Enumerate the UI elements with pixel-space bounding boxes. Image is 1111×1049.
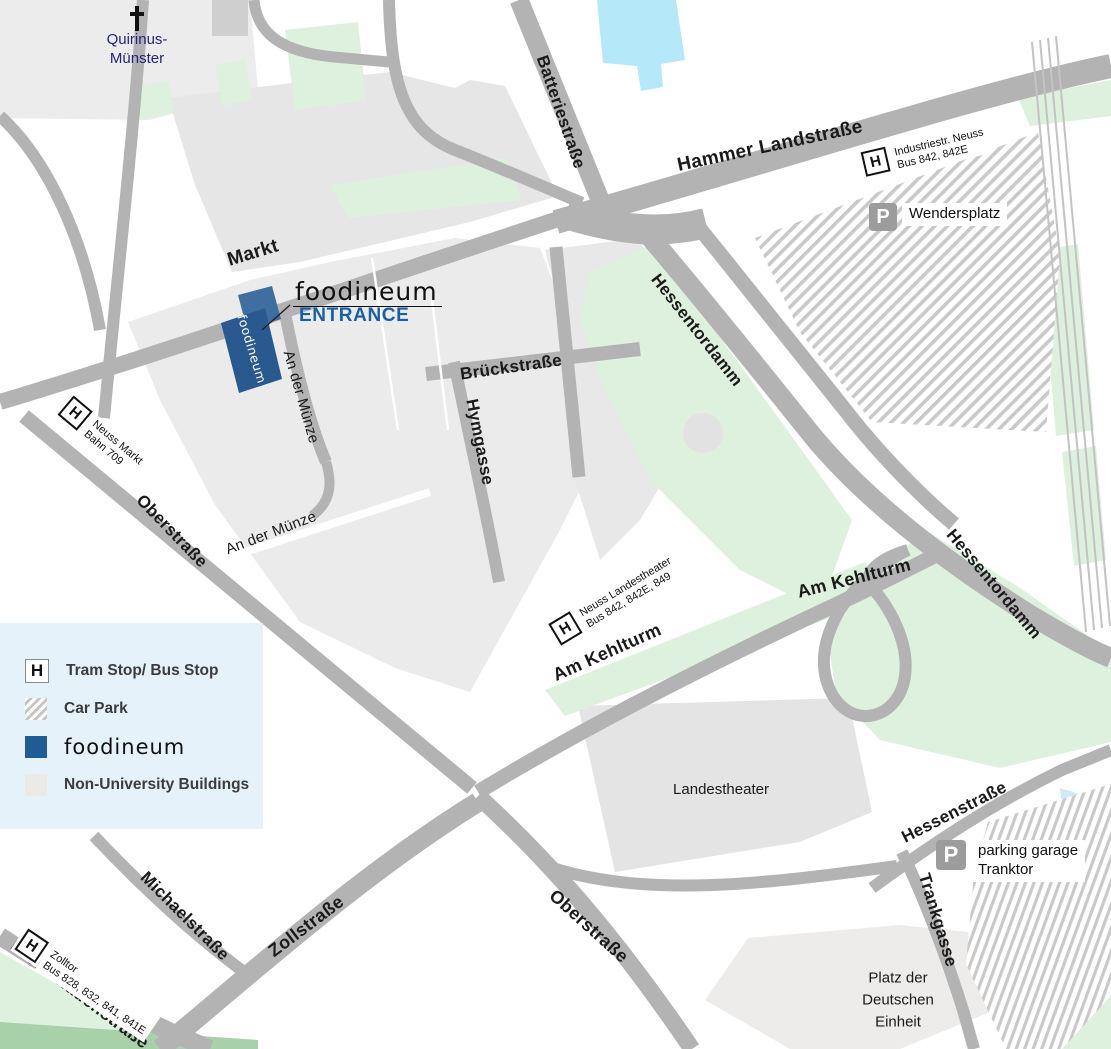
foodineum-title: foodineum bbox=[293, 279, 442, 307]
parking-garage-label: parking garageTranktor bbox=[971, 840, 1085, 882]
legend: H Tram Stop/ Bus Stop Car Park foodineum… bbox=[0, 623, 263, 829]
parking-icon: P bbox=[869, 203, 897, 231]
quirinus-muenster-label: Quirinus- Münster bbox=[107, 31, 168, 69]
legend-item-foodineum: foodineum bbox=[25, 735, 263, 759]
legend-item-non-university: Non-University Buildings bbox=[25, 774, 263, 796]
foodineum-entrance-label: ENTRANCE bbox=[299, 306, 409, 325]
campus-map: Markt Batteriestraße Hammer Landstraße B… bbox=[0, 0, 1111, 1049]
pond bbox=[683, 413, 723, 453]
tram-stop-icon: H bbox=[861, 147, 891, 177]
legend-label: foodineum bbox=[64, 735, 185, 759]
church-cross-icon bbox=[129, 6, 145, 31]
car-park-swatch bbox=[25, 698, 47, 720]
non-university-swatch bbox=[25, 774, 47, 796]
parking-garage-tranktor: P parking garageTranktor bbox=[936, 840, 1085, 882]
landestheater-label: Landestheater bbox=[673, 779, 769, 801]
legend-label: Tram Stop/ Bus Stop bbox=[66, 662, 218, 680]
legend-label: Non-University Buildings bbox=[64, 776, 249, 794]
legend-item-tram-stop: H Tram Stop/ Bus Stop bbox=[25, 659, 263, 683]
legend-item-car-park: Car Park bbox=[25, 698, 263, 720]
carpark-wendersplatz: P Wendersplatz bbox=[869, 203, 1007, 231]
parking-icon: P bbox=[936, 840, 966, 870]
carpark-label: Wendersplatz bbox=[902, 203, 1007, 226]
tram-stop-icon: H bbox=[25, 659, 49, 683]
foodineum-swatch bbox=[25, 736, 47, 758]
legend-label: Car Park bbox=[64, 700, 128, 718]
platz-der-deutschen-einheit-label: Platz der Deutschen Einheit bbox=[862, 967, 934, 1032]
